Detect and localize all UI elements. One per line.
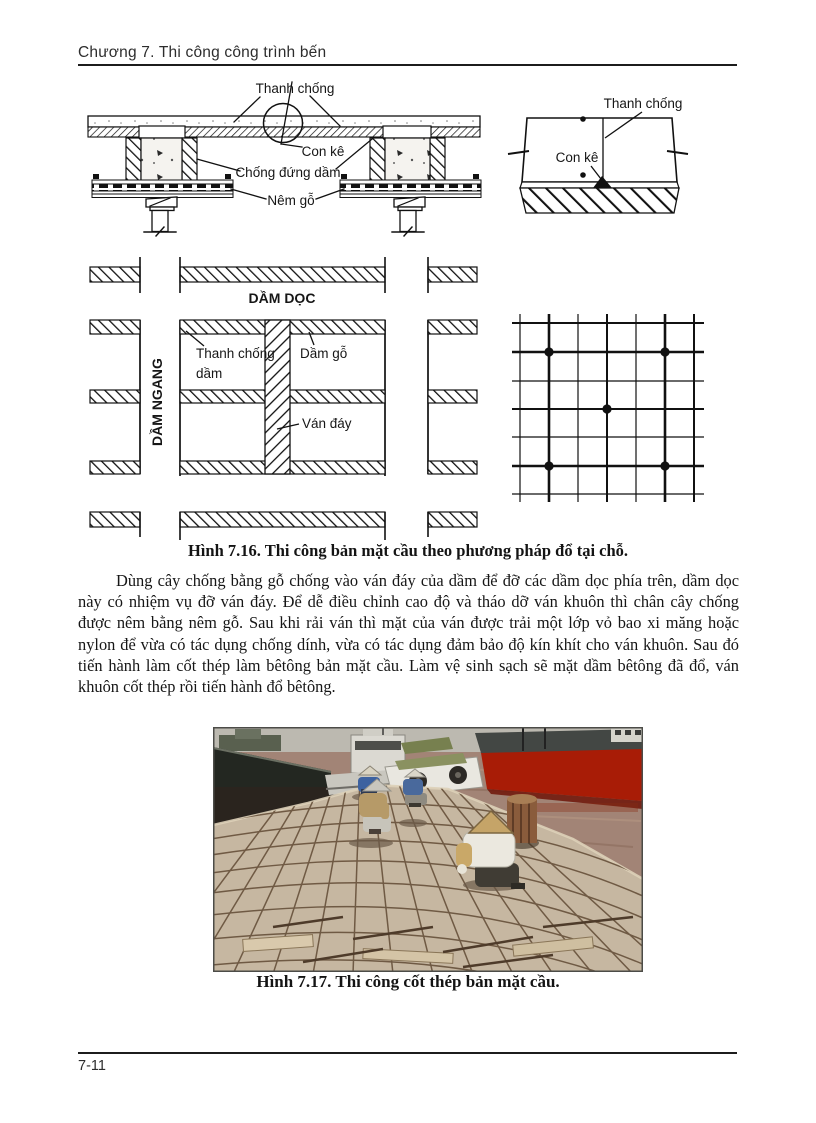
figure-716-diagram: Thanh chống Con kê Chống đứng dầm Nêm gỗ…	[0, 0, 816, 560]
label-dam-doc: DẦM DỌC	[249, 290, 316, 306]
label-dam-ngang: DẦM NGANG	[149, 358, 165, 446]
document-page: Chương 7. Thi công công trình bến	[0, 0, 816, 1123]
detail-label-con-ke: Con kê	[556, 150, 599, 165]
plan-view: DẦM DỌC	[90, 257, 477, 540]
page-number: 7-11	[78, 1058, 106, 1074]
label-thanh-chong-dam-1: Thanh chống	[196, 346, 275, 361]
figure-716-caption: Hình 7.16. Thi công bản mặt cầu theo phư…	[0, 541, 816, 561]
figure-717-caption: Hình 7.17. Thi công cốt thép bản mặt cầu…	[0, 972, 816, 992]
footer-rule	[78, 1052, 737, 1054]
label-chong-dung-dam: Chống đứng dầm	[235, 165, 340, 180]
label-nem-go: Nêm gỗ	[267, 193, 314, 208]
section-view: Thanh chống Con kê Chống đứng dầm Nêm gỗ	[88, 81, 481, 236]
label-van-day: Ván đáy	[302, 416, 352, 431]
label-dam-go: Dầm gỗ	[300, 346, 347, 361]
figure-717-photo	[213, 727, 643, 972]
label-thanh-chong-dam-2: dầm	[196, 366, 222, 381]
detail-label-thanh-chong: Thanh chống	[604, 96, 683, 111]
detail-view: Thanh chống Con kê	[508, 96, 688, 213]
label-con-ke: Con kê	[302, 144, 345, 159]
rebar-grid-plan	[512, 314, 704, 502]
body-paragraph: Dùng cây chống bằng gỗ chống vào ván đáy…	[78, 570, 739, 697]
label-thanh-chong: Thanh chống	[256, 81, 335, 96]
